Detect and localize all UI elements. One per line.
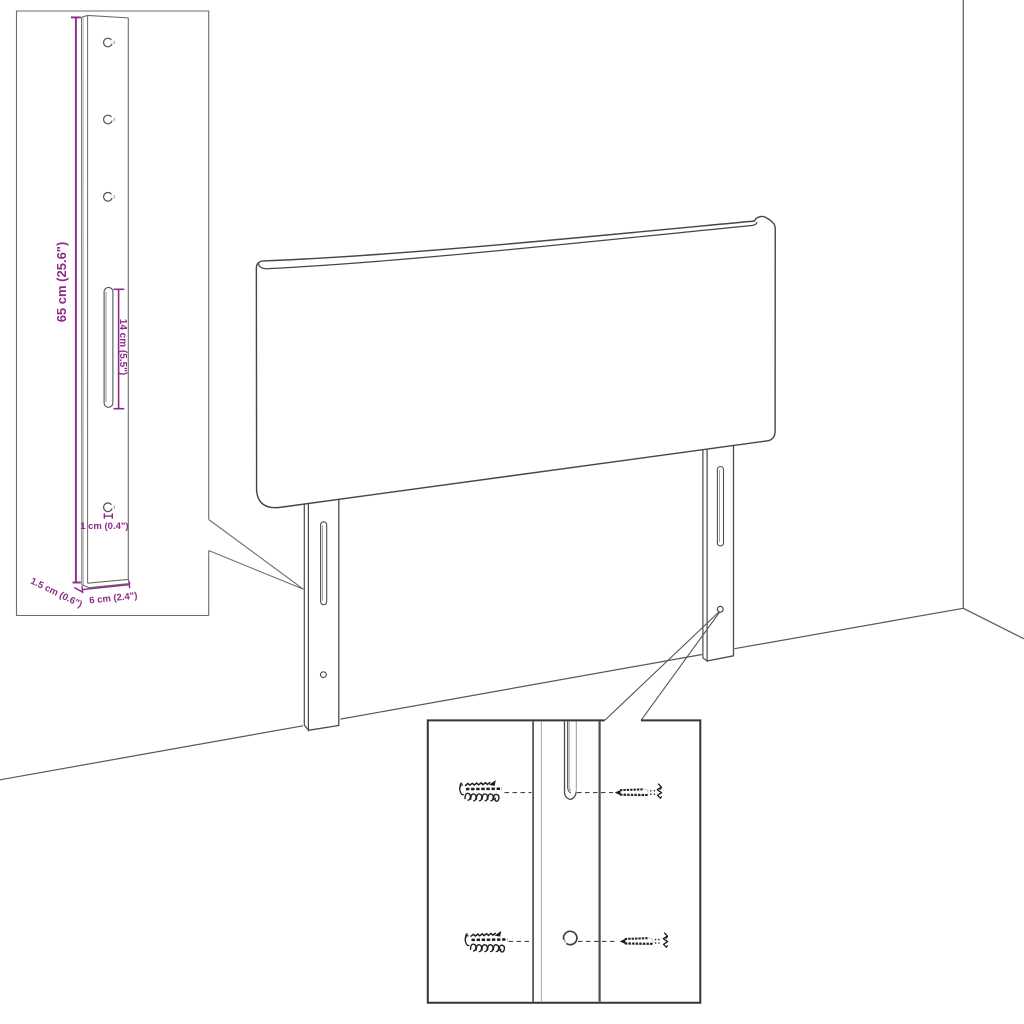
svg-text:1 cm (0.4"): 1 cm (0.4") bbox=[80, 521, 128, 532]
svg-text:14 cm (5.5"): 14 cm (5.5") bbox=[117, 319, 128, 375]
svg-text:65 cm (25.6"): 65 cm (25.6") bbox=[54, 242, 69, 323]
